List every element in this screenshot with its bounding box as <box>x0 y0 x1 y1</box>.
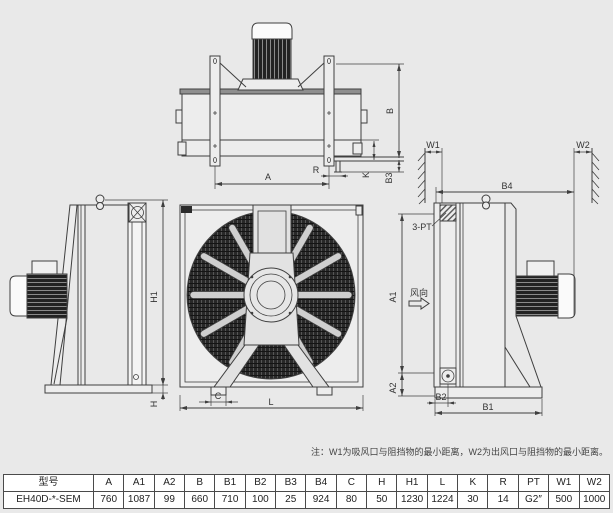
spec-header-cell: R <box>488 475 518 492</box>
lifting-eye <box>96 195 104 203</box>
spec-header-cell: W1 <box>549 475 579 492</box>
side-tab-right <box>361 110 367 123</box>
spec-cell: 14 <box>488 492 518 509</box>
dim-label-a2: A2 <box>388 382 398 393</box>
spec-cell: 924 <box>306 492 336 509</box>
spec-cell: 1087 <box>124 492 154 509</box>
motor-junction-box-right <box>527 261 554 276</box>
spec-header-cell: B2 <box>245 475 275 492</box>
footnote: 注：W1为吸风口与阻挡物的最小距离，W2为出风口与阻挡物的最小距离。 <box>311 445 608 458</box>
side-tab-left <box>176 110 182 123</box>
port-callout-label: 3-PT <box>412 222 432 232</box>
motor-cap-top <box>252 23 292 39</box>
dim-label-b1: B1 <box>482 402 493 412</box>
dim-label-b3: B3 <box>384 172 394 183</box>
motor-cap-right <box>558 274 575 318</box>
spec-header-row: 型号AA1A2BB1B2B3B4CHH1LKRPTW1W2 <box>4 475 610 492</box>
spec-header-cell: W2 <box>579 475 610 492</box>
spec-header-cell: B <box>185 475 215 492</box>
spec-cell: 660 <box>185 492 215 509</box>
corner-fitting <box>181 206 192 213</box>
base-plate-left-view <box>45 385 152 393</box>
spec-header-cell: B4 <box>306 475 336 492</box>
dim-label-w1: W1 <box>426 140 440 150</box>
dim-label-h1: H1 <box>149 291 159 303</box>
dim-label-l: L <box>268 397 273 407</box>
spec-header-cell: A1 <box>124 475 154 492</box>
shroud-body <box>460 203 505 387</box>
spec-cell: EH40D-*-SEM <box>4 492 94 509</box>
motor-body-left <box>27 274 67 318</box>
spec-header-cell: B3 <box>276 475 306 492</box>
dim-label-k: K <box>361 172 371 178</box>
spec-header-cell: C <box>336 475 366 492</box>
spec-header-cell: B1 <box>215 475 245 492</box>
cooler-core-profile <box>128 203 146 385</box>
spec-cell: 710 <box>215 492 245 509</box>
motor-junction-box-left <box>32 261 57 274</box>
drawing-sheet: A R B K B3 <box>0 0 613 513</box>
wind-direction-label: 风向 <box>410 287 428 298</box>
spec-header-cell: A <box>94 475 124 492</box>
spec-cell: 500 <box>549 492 579 509</box>
spec-cell: 1000 <box>579 492 610 509</box>
spec-header-cell: H1 <box>397 475 427 492</box>
spec-table: 型号AA1A2BB1B2B3B4CHH1LKRPTW1W2 EH40D-*-SE… <box>3 474 610 509</box>
spec-cell: 25 <box>276 492 306 509</box>
left-side-view: H1 H <box>10 195 168 407</box>
dim-label-b2: B2 <box>435 392 446 402</box>
spec-cell: 99 <box>154 492 184 509</box>
dim-label-b: B <box>385 108 395 114</box>
spec-cell: G2″ <box>518 492 548 509</box>
spec-cell: 80 <box>336 492 366 509</box>
dim-label-a: A <box>265 172 271 182</box>
spec-header-cell: H <box>367 475 397 492</box>
spec-cell: 30 <box>458 492 488 509</box>
dim-label-a1: A1 <box>388 291 398 302</box>
oil-port <box>440 205 456 221</box>
spec-header-cell: K <box>458 475 488 492</box>
top-view: A R B K B3 <box>176 23 404 189</box>
base-plate-right-view <box>435 387 542 398</box>
dim-label-b4: B4 <box>501 181 512 191</box>
spec-header-cell: A2 <box>154 475 184 492</box>
wind-direction-arrow-icon <box>409 298 429 309</box>
spec-header-cell: L <box>427 475 457 492</box>
spec-cell: 50 <box>367 492 397 509</box>
dim-label-r: R <box>313 165 320 175</box>
spec-cell: 100 <box>245 492 275 509</box>
front-view: C L A1 A2 <box>180 205 441 411</box>
spec-cell: 760 <box>94 492 124 509</box>
foot-right <box>317 387 332 395</box>
motor-body-top <box>253 39 291 79</box>
dim-label-h: H <box>149 401 159 408</box>
dim-label-c: C <box>215 391 222 401</box>
spec-cell: 1224 <box>427 492 457 509</box>
motor-cap-left <box>10 276 27 316</box>
motor-support-channel <box>253 205 291 253</box>
dim-label-w2: W2 <box>576 140 590 150</box>
spec-row: EH40D-*-SEM76010879966071010025924805012… <box>4 492 610 509</box>
spec-header-cell: 型号 <box>4 475 94 492</box>
spec-header-cell: PT <box>518 475 548 492</box>
right-side-view: 风向 3-PT B4 W1 W2 B2 B1 <box>409 140 599 416</box>
spec-cell: 1230 <box>397 492 427 509</box>
motor-mount <box>238 79 303 90</box>
motor-body-right <box>516 276 558 316</box>
technical-drawing: A R B K B3 <box>0 0 613 460</box>
